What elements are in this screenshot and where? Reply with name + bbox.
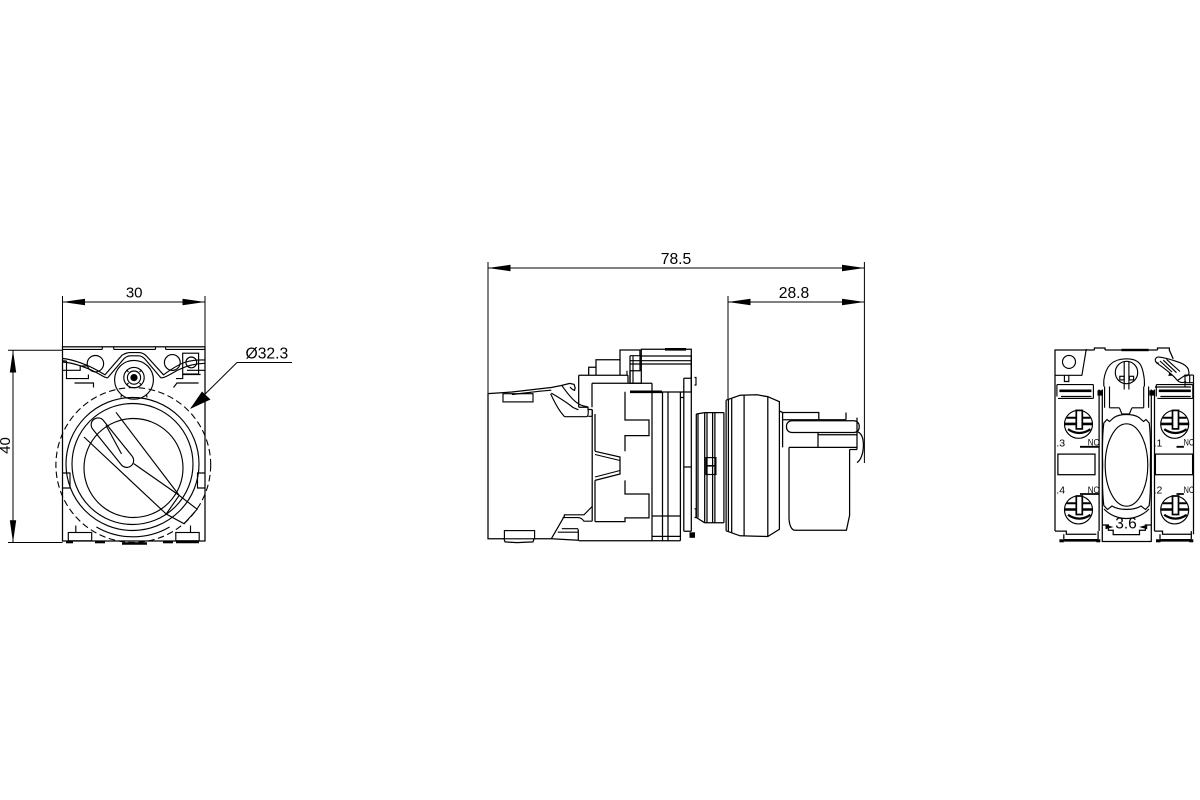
svg-text:3.6: 3.6 (1115, 516, 1137, 533)
svg-text:Ø32.3: Ø32.3 (246, 345, 289, 362)
svg-text:NC: NC (1184, 485, 1195, 496)
svg-text:30: 30 (126, 284, 143, 301)
svg-text:78.5: 78.5 (661, 251, 692, 268)
svg-text:.4: .4 (1056, 485, 1065, 497)
svg-text:28.8: 28.8 (779, 285, 810, 302)
svg-text:40: 40 (0, 437, 14, 454)
svg-text:.2: .2 (1154, 485, 1163, 497)
svg-text:.3: .3 (1056, 437, 1065, 449)
svg-text:.1: .1 (1154, 437, 1163, 449)
svg-text:NC: NC (1184, 438, 1195, 449)
